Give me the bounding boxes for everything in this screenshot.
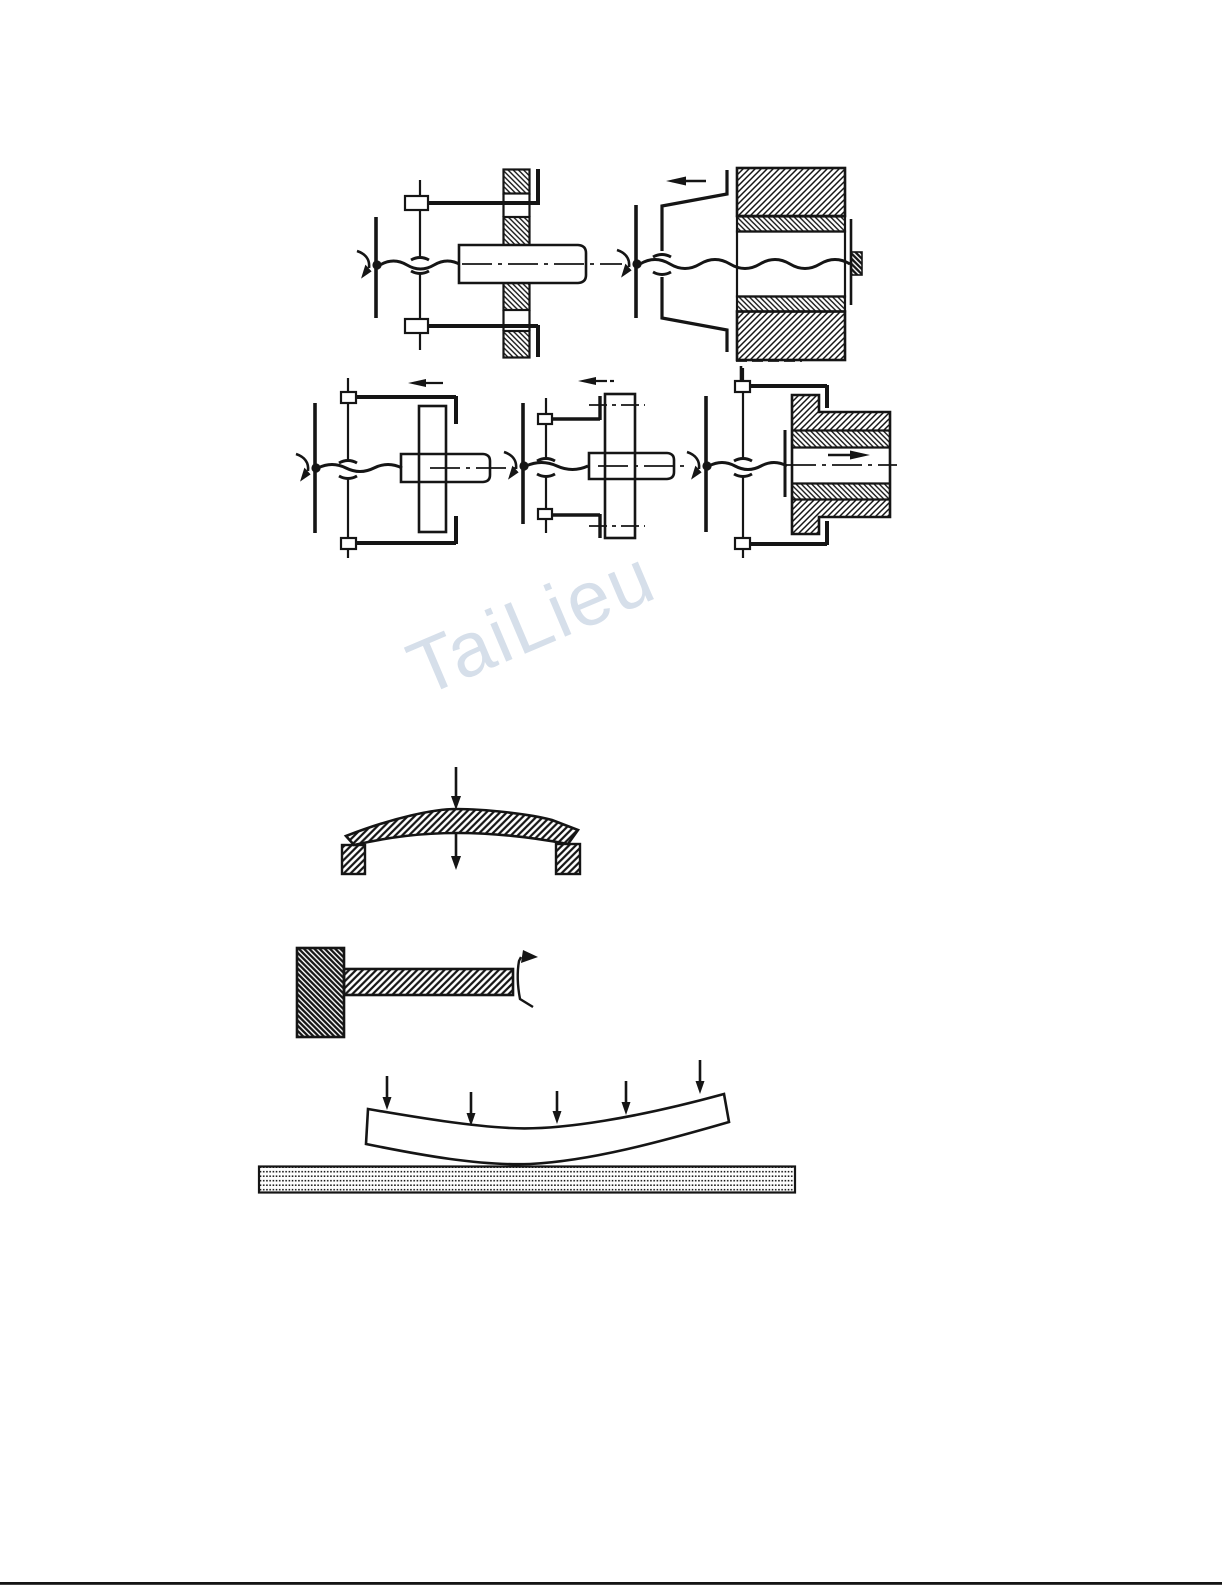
svg-text:TaiLieu: TaiLieu [396, 533, 667, 713]
